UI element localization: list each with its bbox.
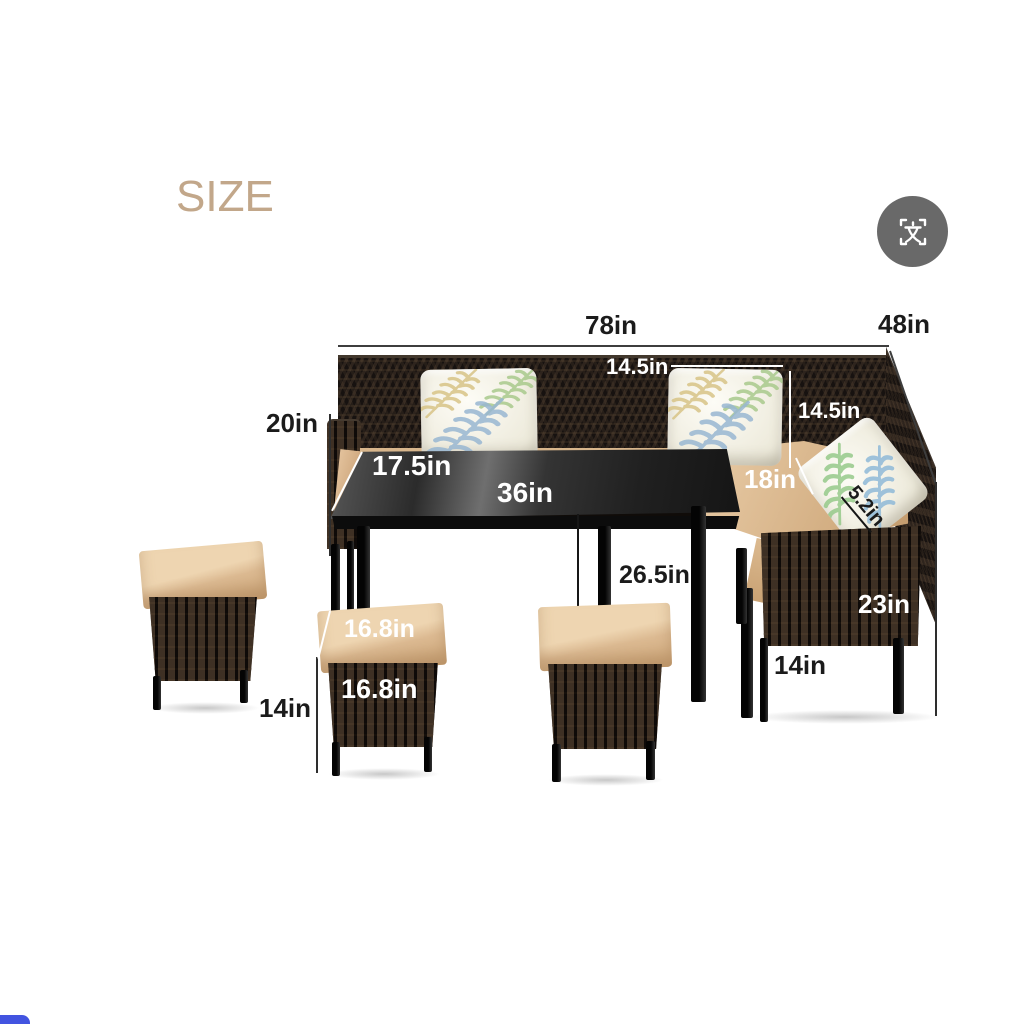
dim-chair-height: 23in [858,591,910,617]
dim-back-height: 14.5in [798,400,860,422]
dimline-back-section-width [671,365,783,367]
table-rim [330,516,740,529]
dim-seat-depth: 18in [744,466,796,492]
dimline-overall-width [338,345,889,347]
ottoman2-leg [424,737,432,772]
table-leg [736,548,747,624]
dim-table-length: 36in [497,479,553,507]
chair-leg [893,638,904,714]
dim-table-height: 26.5in [619,563,690,588]
leaf-pillow-left [420,368,538,460]
dim-table-depth: 17.5in [372,452,451,480]
ottoman3-leg [646,741,655,780]
table-leg [691,506,706,702]
dimline-back-height [789,371,791,468]
dimline-chair-height [935,482,937,716]
ottoman3-cushion [538,603,672,672]
dim-overall-width: 78in [585,312,637,338]
ottoman3-base [547,664,663,749]
ottoman1-shadow [150,702,260,714]
translate-icon [893,212,933,252]
dim-arm-height: 20in [266,410,318,436]
ottoman1-base [148,597,258,681]
dimline-ottoman-leg-height [316,657,318,773]
ottoman2-leg [332,742,340,776]
product-size-image: 78in 48in 14.5in 14.5in 20in 17.5in 36in… [0,0,1024,1024]
chair-leg [760,638,768,722]
dim-overall-depth: 48in [878,311,930,337]
ottoman1-leg [240,670,248,703]
ottoman1-leg [153,676,161,710]
dimline-arm-height [329,414,331,556]
dim-ottoman-top-width: 16.8in [344,617,415,642]
dim-ottoman-front-width: 16.8in [341,676,418,703]
translate-button[interactable] [877,196,948,267]
size-heading: SIZE [176,172,274,222]
chair-front [761,526,921,646]
dim-ottoman-leg-height: 14in [259,695,311,721]
sofa-leg [347,541,354,615]
ottoman3-leg [552,744,561,782]
dim-back-section-width: 14.5in [606,356,668,378]
partial-button-fragment[interactable] [0,1015,30,1024]
dim-chair-leg-height: 14in [774,652,826,678]
chair-shadow [750,710,940,724]
